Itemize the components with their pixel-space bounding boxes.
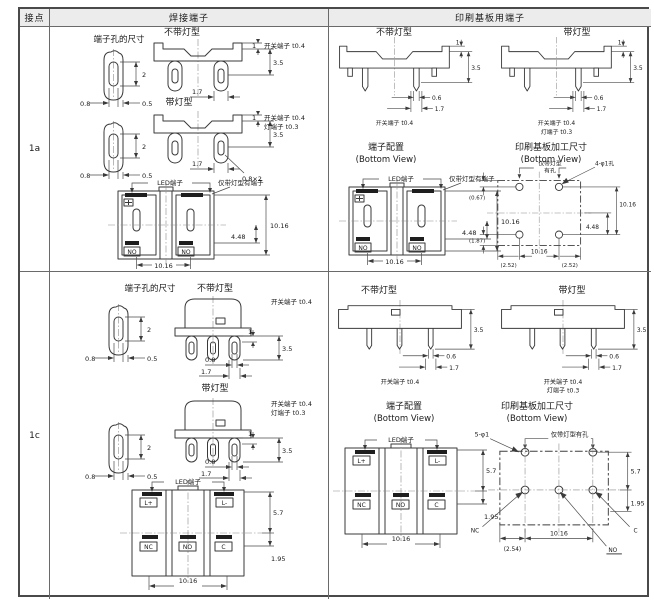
note-lamp-only-holes: 仅带灯型: [538, 159, 561, 167]
front-view-3leg-drawing: 1 3.5 0.8 1.7 开关端子 t0.4: [153, 296, 321, 382]
title-no-lamp: 不带灯型: [175, 284, 255, 295]
note-lamp-terminal: 灯端子 t0.3: [547, 387, 580, 395]
title-bottom-view: (Bottom View): [336, 155, 436, 166]
pin-label-c: C: [221, 544, 225, 551]
dim-label: (1.87): [469, 239, 485, 245]
dim-label: 10.16: [179, 577, 198, 585]
dim-label: 4.48: [586, 225, 599, 231]
dim-label: 1.95: [631, 500, 645, 507]
dim-label: 1.7: [449, 365, 459, 372]
bottom-view-2pole-drawing: LED端子 仅带灯型有端子 NO NO 10.16 4.48 10.16: [100, 177, 305, 271]
header-contact-label: 接点: [24, 11, 44, 24]
drawing-1a-solder-bottom-view: LED端子 仅带灯型有端子 NO NO 10.16 4.48 10.16: [100, 177, 305, 271]
note-switch-terminal: 开关端子 t0.4: [381, 378, 420, 386]
cell-1c-pcb: 不带灯型 带灯型 3.5 0.6 1.7 开关端子 t0.4: [329, 272, 651, 599]
note-5-holes: 5-φ1: [475, 432, 489, 439]
drawing-1c-pcb-lamp: 3.5 0.6 1.7 开关端子 t0.4 灯端子 t0.3: [494, 300, 649, 396]
dim-label: (0.67): [469, 195, 485, 201]
note-switch-terminal: 开关端子 t0.4: [271, 399, 312, 408]
drawing-1a-pcb-hole-layout: 仅带灯型 有孔 4-φ1孔 (0.67) (1.87) 10.16 4.48 1…: [469, 159, 649, 271]
note-led-terminal: LED端子: [175, 477, 201, 486]
dim-label: 0.6: [446, 354, 456, 361]
cell-1a-solder: 不带灯型 端子孔的尺寸 2 0.8 0.5: [50, 27, 329, 272]
dim-label: 3.5: [273, 131, 283, 139]
pin-label-no: NO: [396, 502, 405, 509]
note-lamp-terminal: 灯端子 t0.3: [264, 122, 298, 131]
dim-label: 3.5: [273, 59, 283, 67]
dim-label: 0.6: [432, 95, 442, 102]
dim-label: 1: [248, 430, 252, 438]
dim-label: 10.16: [531, 249, 548, 255]
header-contact: 接点: [20, 9, 50, 27]
drawing-lines: [90, 49, 140, 107]
pin-label-no: NO: [127, 249, 136, 256]
dim-label: 1.7: [435, 106, 445, 113]
pin-label-c: C: [634, 529, 638, 535]
dim-label: 2: [147, 444, 151, 452]
pin-label-lplus: L+: [144, 500, 152, 507]
dim-label: (2.52): [562, 263, 578, 269]
dim-label: 1: [252, 114, 256, 122]
title-lamp: 带灯型: [532, 286, 612, 297]
dim-label: 1: [248, 328, 252, 336]
dim-label: 0.8: [80, 172, 90, 180]
title-lamp: 带灯型: [175, 384, 255, 395]
pin-label-c: C: [434, 502, 438, 509]
drawing-lines: [480, 167, 620, 260]
dim-label: 5.7: [273, 509, 283, 517]
cell-1a-pcb: 不带灯型 带灯型 1 3.5 0.6 1.7 开关端子 t0.4: [329, 27, 651, 272]
dim-label: 10.16: [392, 535, 411, 543]
dim-label: (2.52): [501, 263, 517, 269]
drawing-1a-pcb-lamp: 1 3.5 0.6 1.7 开关端子 t0.4 灯端子 t0.3: [497, 37, 647, 138]
pin-label-lminus: L-: [222, 500, 227, 507]
note-lamp-only-terminal: 仅带灯型有端子: [218, 178, 264, 187]
dim-label: 3.5: [474, 327, 484, 334]
header-pcb-label: 印刷基板用端子: [455, 11, 525, 24]
dim-label: 5.7: [631, 469, 641, 476]
dim-label: 10.16: [550, 530, 568, 537]
note-switch-terminal: 开关端子 t0.4: [376, 119, 414, 127]
drawing-1c-solder-bottom-view: LED端子 L+ L- NC NO C 5.7 1.95 10.16: [116, 476, 296, 596]
drawing-lines: [108, 183, 270, 269]
dim-label: 1.95: [271, 555, 285, 563]
note-lamp-terminal: 灯端子 t0.3: [271, 408, 305, 417]
header-pcb-terminals: 印刷基板用端子: [329, 9, 651, 27]
dim-label: 2: [147, 326, 151, 334]
title-bottom-view: (Bottom View): [467, 414, 607, 425]
dim-label: 1.7: [612, 365, 622, 372]
row-label-1a: 1a: [20, 27, 50, 272]
title-no-lamp: 不带灯型: [339, 286, 419, 297]
dim-label: 3.5: [282, 345, 292, 353]
title-terminal-layout: 端子配置: [354, 402, 454, 413]
dim-label: 0.8: [85, 355, 95, 363]
note-led-terminal: LED端子: [388, 435, 414, 444]
note-led-terminal: LED端子: [388, 174, 414, 183]
header-solder-label: 焊接端子: [169, 11, 209, 24]
dim-label: (2.54): [504, 547, 521, 553]
pcb-layout-4hole-drawing: 仅带灯型 有孔 4-φ1孔 (0.67) (1.87) 10.16 4.48 1…: [469, 159, 649, 271]
note-switch-terminal: 开关端子 t0.4: [264, 113, 305, 122]
pcb-side-view-3pin-drawing: 3.5 0.6 1.7 开关端子 t0.4 灯端子 t0.3: [494, 300, 649, 396]
title-pcb-dims: 印刷基板加工尺寸: [467, 402, 607, 413]
drawing-lines: [175, 398, 283, 481]
dim-label: 0.8: [85, 473, 95, 481]
drawing-lines: [95, 422, 145, 480]
row-label-1c: 1c: [20, 272, 50, 599]
dim-label: 3.5: [282, 447, 292, 455]
drawing-1c-pcb-nolamp: 3.5 0.6 1.7 开关端子 t0.4: [331, 300, 486, 396]
pcb-layout-5hole-drawing: 5-φ1 仅带灯型有孔 5.7 1.95 NC C NO (2.54) 10.1…: [465, 428, 649, 558]
dim-label: 0.8: [205, 458, 215, 466]
dim-label: 1.7: [597, 106, 607, 113]
pin-label-lminus: L-: [435, 458, 440, 465]
title-pcb-dims: 印刷基板加工尺寸: [481, 143, 621, 154]
note-led-terminal: LED端子: [157, 178, 183, 187]
pin-label-nc: NC: [357, 502, 366, 509]
drawing-lines: [340, 37, 473, 112]
drawing-1c-pcb-hole-layout: 5-φ1 仅带灯型有孔 5.7 1.95 NC C NO (2.54) 10.1…: [465, 428, 649, 558]
dim-label: 10.16: [154, 262, 173, 270]
drawing-1a-pcb-nolamp: 1 3.5 0.6 1.7 开关端子 t0.4: [335, 37, 485, 138]
pin-label-no: NO: [183, 544, 192, 551]
row-1a-text: 1a: [29, 144, 40, 154]
dim-label: 3.5: [471, 65, 481, 72]
drawing-lines: [120, 480, 274, 590]
drawing-lines: [90, 121, 140, 179]
note-switch-terminal: 开关端子 t0.4: [271, 297, 312, 306]
pin-label-no: NO: [412, 245, 421, 252]
dim-label: 0.8: [80, 100, 90, 108]
pcb-side-view-3pin-drawing: 3.5 0.6 1.7 开关端子 t0.4: [331, 300, 486, 396]
drawing-1a-solder-lamp: 1 3.5 1.7 0.8×2 开关端子 t0.4 灯端子 t0.3: [146, 111, 321, 183]
note-lamp-terminal: 灯端子 t0.3: [541, 128, 573, 136]
dim-label: 1.7: [192, 88, 202, 96]
dim-label: 1: [456, 39, 460, 46]
pin-label-no: NO: [181, 249, 190, 256]
note-switch-terminal: 开关端子 t0.4: [538, 119, 576, 127]
header-solder-terminals: 焊接端子: [50, 9, 329, 27]
drawing-1c-solder-nolamp: 1 3.5 0.8 1.7 开关端子 t0.4: [153, 296, 321, 382]
title-lamp: 带灯型: [139, 98, 219, 109]
dim-label: 10.16: [619, 203, 636, 209]
drawing-lines: [95, 304, 145, 362]
drawing-lines: [175, 296, 283, 379]
dim-label: 0.8: [205, 356, 215, 364]
note-switch-terminal: 开关端子 t0.4: [264, 41, 305, 50]
note-4-holes: 4-φ1孔: [595, 159, 614, 167]
dim-label: 1: [618, 39, 622, 46]
terminal-dimensions-table: 接点 焊接端子 印刷基板用端子 1a 不带灯型 端子孔的尺寸 2 0.8 0.5: [18, 7, 649, 597]
dim-label: 3.5: [633, 65, 643, 72]
dim-label: 1.7: [201, 368, 211, 376]
note-switch-terminal: 开关端子 t0.4: [544, 378, 583, 386]
solder-side-view-drawing: 1 3.5 1.7 0.8×2 开关端子 t0.4 灯端子 t0.3: [146, 111, 321, 183]
dim-label: 0.6: [609, 354, 619, 361]
pin-label-lplus: L+: [357, 458, 365, 465]
drawing-1c-solder-lamp: 1 3.5 0.8 1.7 开关端子 t0.4 灯端子 t0.3: [153, 398, 321, 484]
note-lamp-only-holes: 仅带灯型有孔: [551, 430, 589, 439]
bottom-view-3pole-drawing: LED端子 L+ L- NC NO C 5.7 1.95 10.16: [116, 476, 296, 596]
note-lamp-only-holes: 有孔: [544, 166, 556, 174]
pin-label-no: NO: [358, 245, 367, 252]
dim-label: 3.5: [637, 327, 647, 334]
pin-label-nc: NC: [144, 544, 153, 551]
pin-label-no: NO: [608, 548, 617, 554]
pcb-side-view-drawing: 1 3.5 0.6 1.7 开关端子 t0.4 灯端子 t0.3: [497, 37, 647, 138]
row-1c-text: 1c: [29, 431, 40, 441]
dim-label: 0.6: [594, 95, 604, 102]
dim-label: 4.48: [231, 233, 245, 241]
dim-label: 10.16: [270, 222, 289, 230]
drawing-lines: [502, 37, 635, 112]
pin-label-nc: NC: [471, 529, 479, 535]
dim-label: 1.7: [192, 160, 202, 168]
title-bottom-view: (Bottom View): [354, 414, 454, 425]
title-terminal-layout: 端子配置: [336, 143, 436, 154]
dim-label: 10.16: [385, 258, 404, 266]
cell-1c-solder: 端子孔的尺寸 不带灯型 2 0.8 0.5: [50, 272, 329, 599]
drawing-lines: [333, 438, 487, 548]
pcb-side-view-drawing: 1 3.5 0.6 1.7 开关端子 t0.4: [335, 37, 485, 138]
dim-label: 1: [252, 42, 256, 50]
front-view-3leg-drawing: 1 3.5 0.8 1.7 开关端子 t0.4 灯端子 t0.3: [153, 398, 321, 484]
